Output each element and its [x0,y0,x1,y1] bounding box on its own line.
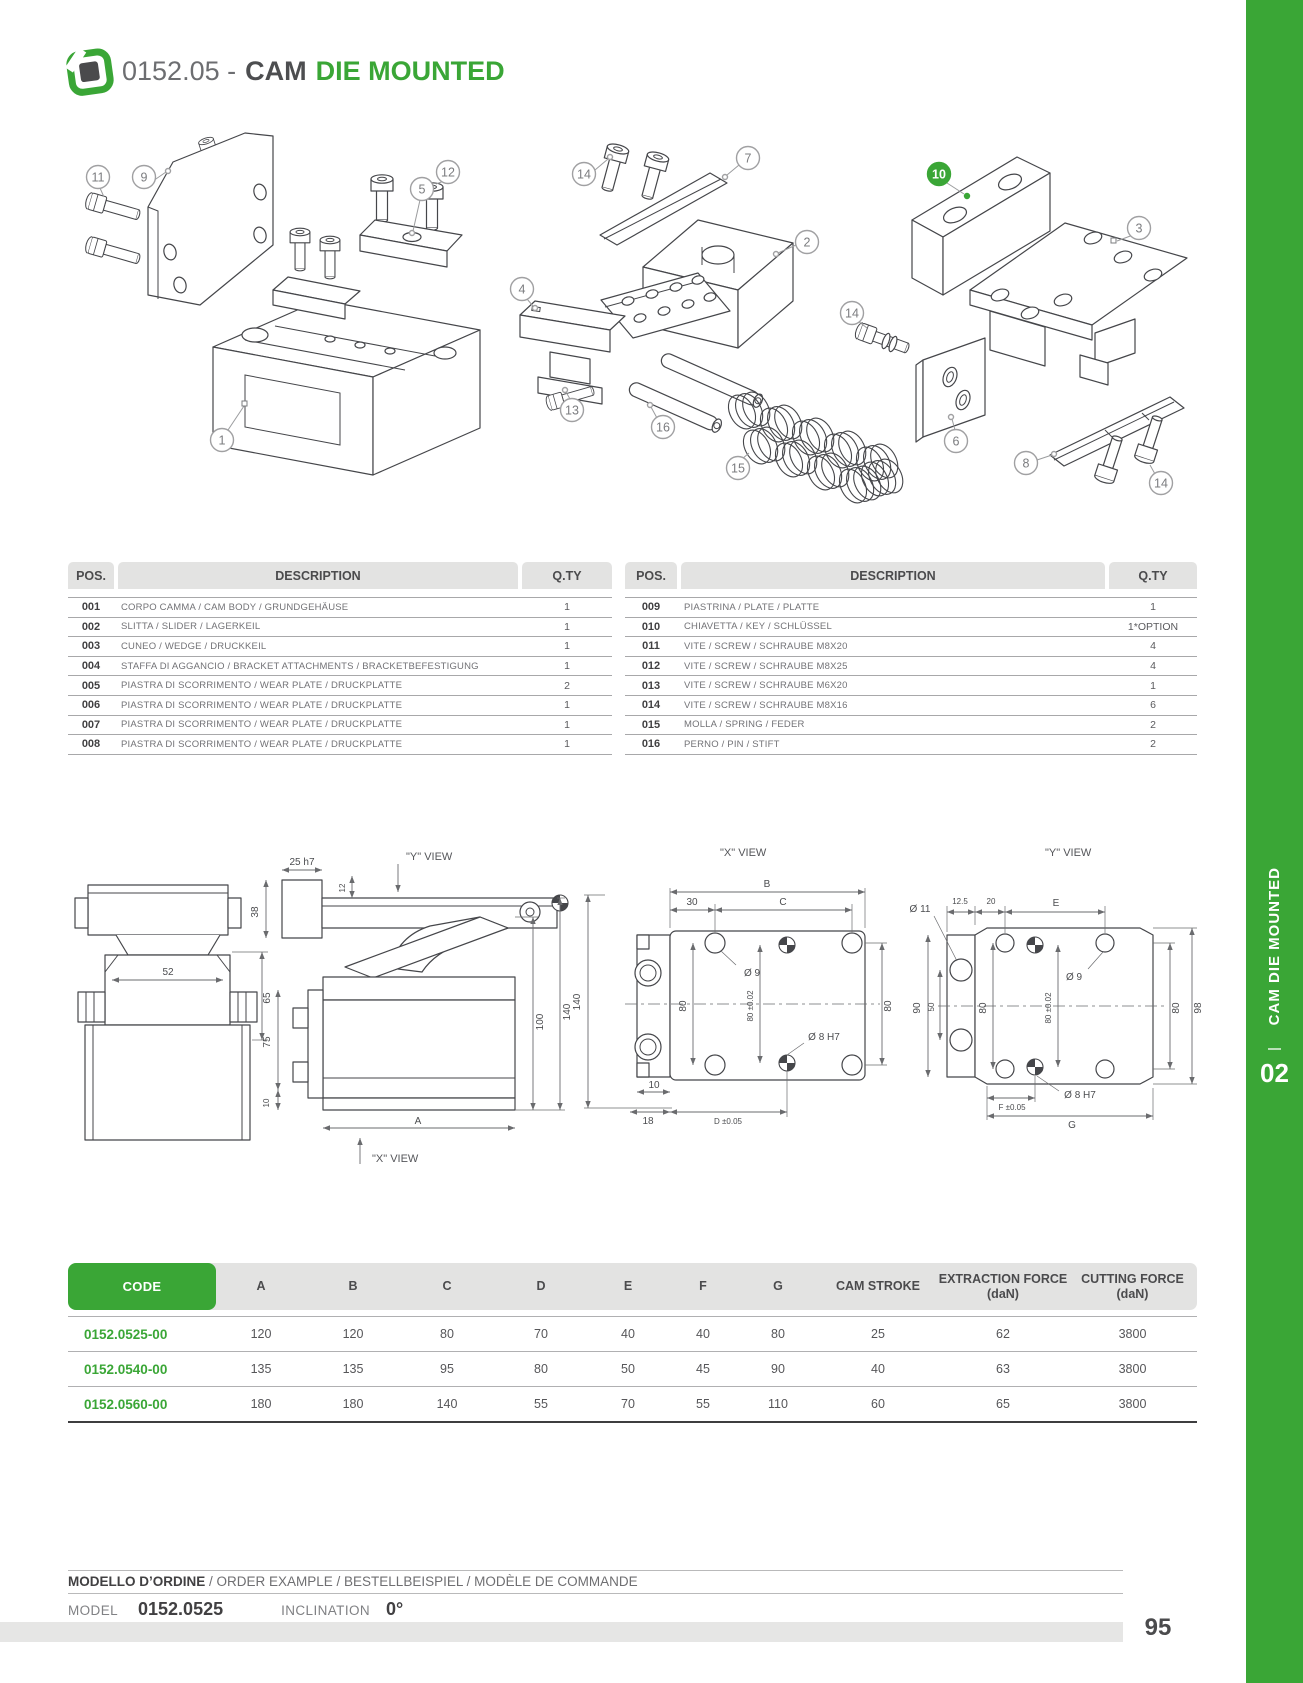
svg-text:98: 98 [1193,1002,1204,1014]
page-title: 0152.05 -CAMDIE MOUNTED [122,56,505,87]
part-desc: PIASTRINA / PLATE / PLATTE [677,602,1109,613]
col-header-extraction-force: EXTRACTION FORCE (daN) [938,1272,1068,1302]
part-pos: 011 [625,640,677,652]
table-row: 007PIASTRA DI SCORRIMENTO / WEAR PLATE /… [68,716,612,736]
spec-value: 135 [216,1362,306,1376]
spec-table: CODE A B C D E F G CAM STROKE EXTRACTION… [68,1263,1197,1423]
part-pos: 008 [68,738,114,750]
svg-text:30: 30 [686,897,698,908]
part-qty: 1 [1109,680,1197,692]
table-row: 010CHIAVETTA / KEY / SCHLÜSSEL1*OPTION [625,618,1197,638]
table-row: 015MOLLA / SPRING / FEDER2 [625,716,1197,736]
code-header: CODE [68,1263,216,1310]
spec-value: 120 [216,1327,306,1341]
table-row: 006PIASTRA DI SCORRIMENTO / WEAR PLATE /… [68,696,612,716]
catalog-page: 0152.05 -CAMDIE MOUNTED [0,0,1303,1683]
part-qty: 1 [522,719,612,731]
callout-10: 10 [928,163,970,199]
part-pos: 010 [625,621,677,633]
inclination-value: 0° [386,1599,403,1620]
col-header-g: G [738,1279,818,1294]
page-title-cam: CAM [245,56,307,86]
part-desc: VITE / SCREW / SCHRAUBE M8X16 [677,700,1109,711]
callout-12: 12 [436,161,460,185]
part-pos: 001 [68,601,114,613]
spec-value: 45 [668,1362,738,1376]
parts-table-left-header: POS. DESCRIPTION Q.TY [68,562,612,589]
part-desc: PIASTRA DI SCORRIMENTO / WEAR PLATE / DR… [114,680,522,691]
part-qty: 1 [522,660,612,672]
x-view-drawing: "X" VIEW B 30 C Ø 9 80 80 ±0. [572,847,894,1127]
spec-row: 0152.0540-00 135 135 95 80 50 45 90 40 6… [68,1352,1197,1387]
part-desc: VITE / SCREW / SCHRAUBE M8X20 [677,641,1109,652]
svg-text:10: 10 [262,1098,271,1107]
table-row: 014VITE / SCREW / SCHRAUBE M8X166 [625,696,1197,716]
sidebar-category-label: CAM DIE MOUNTED [1266,867,1283,1025]
header-line2: (daN) [1068,1287,1197,1302]
svg-text:9: 9 [141,171,148,185]
part-pos: 003 [68,640,114,652]
product-code: 0152.0525-00 [68,1327,216,1342]
part-qty: 1 [522,640,612,652]
svg-text:Ø 11: Ø 11 [910,904,931,915]
product-code: 0152.0540-00 [68,1362,216,1377]
svg-text:14: 14 [1154,477,1168,491]
spec-value: 40 [588,1327,668,1341]
svg-text:6: 6 [953,435,960,449]
col-header-f: F [668,1279,738,1294]
part-desc: MOLLA / SPRING / FEDER [677,719,1109,730]
part-pos: 014 [625,699,677,711]
part-qty: 4 [1109,660,1197,672]
svg-text:65: 65 [262,992,273,1004]
svg-text:80: 80 [883,1000,894,1012]
part-pos: 005 [68,680,114,692]
part-bracket-4 [520,301,625,404]
spec-value: 135 [306,1362,400,1376]
svg-text:"X" VIEW: "X" VIEW [720,847,767,859]
part-desc: SLITTA / SLIDER / LAGERKEIL [114,621,522,632]
order-heading-bold: MODELLO D’ORDINE [68,1574,205,1589]
pos-header: POS. [625,562,677,589]
svg-text:100: 100 [535,1013,546,1030]
part-desc: CHIAVETTA / KEY / SCHLÜSSEL [677,621,1109,632]
order-heading-rest: / ORDER EXAMPLE / BESTELLBEISPIEL / MODÈ… [205,1574,637,1589]
part-pos: 012 [625,660,677,672]
spec-value: 140 [400,1397,494,1411]
svg-text:"Y" VIEW: "Y" VIEW [1045,847,1092,859]
table-row: 013VITE / SCREW / SCHRAUBE M6X201 [625,676,1197,696]
part-qty: 2 [1109,719,1197,731]
svg-text:"X" VIEW: "X" VIEW [372,1153,419,1165]
col-header-a: A [216,1279,306,1294]
svg-text:50: 50 [927,1002,936,1011]
table-row: 003CUNEO / WEDGE / DRUCKKEIL1 [68,637,612,657]
svg-text:12: 12 [441,166,455,180]
page-title-code: 0152.05 - [122,56,236,86]
description-header: DESCRIPTION [681,562,1105,589]
part-qty: 6 [1109,699,1197,711]
svg-text:20: 20 [987,897,996,906]
header-line1: CUTTING FORCE [1081,1272,1184,1286]
col-header-cutting-force: CUTTING FORCE (daN) [1068,1272,1197,1302]
footer-bar [0,1622,1123,1642]
spec-value: 3800 [1068,1327,1197,1341]
callout-11: 11 [87,166,110,198]
svg-text:14: 14 [577,168,591,182]
table-row: 012VITE / SCREW / SCHRAUBE M8X254 [625,657,1197,677]
part-pos: 006 [68,699,114,711]
spec-value: 70 [588,1397,668,1411]
spec-row: 0152.0525-00 120 120 80 70 40 40 80 25 6… [68,1317,1197,1352]
svg-text:1: 1 [219,434,226,448]
part-qty: 1 [1109,601,1197,613]
part-qty: 2 [522,680,612,692]
spec-value: 95 [400,1362,494,1376]
part-pos: 009 [625,601,677,613]
y-view-drawing: "Y" VIEW Ø 11 12.5 20 E 90 50 8 [910,847,1204,1131]
part-qty: 1 [522,621,612,633]
spec-value: 120 [306,1327,400,1341]
front-view-drawing: 52 65 [75,885,273,1140]
part-desc: CUNEO / WEDGE / DRUCKKEIL [114,641,522,652]
svg-text:"Y" VIEW: "Y" VIEW [406,851,453,863]
sidebar-category: CAM DIE MOUNTED [1246,840,1303,1052]
parts-table-right: POS. DESCRIPTION Q.TY 009PIASTRINA / PLA… [625,562,1197,755]
svg-text:25 h7: 25 h7 [289,857,314,868]
svg-text:80: 80 [678,1000,689,1012]
qty-header: Q.TY [1109,562,1197,589]
svg-text:7: 7 [745,152,752,166]
sidebar-chapter-number: 02 [1246,1058,1303,1089]
part-pos: 007 [68,719,114,731]
divider [68,1570,1123,1571]
svg-text:B: B [764,879,771,890]
spec-value: 180 [216,1397,306,1411]
svg-text:52: 52 [162,967,174,978]
parts-table-left: POS. DESCRIPTION Q.TY 001CORPO CAMMA / C… [68,562,612,755]
part-plate-6 [916,338,985,442]
order-example-heading: MODELLO D’ORDINE / ORDER EXAMPLE / BESTE… [68,1574,638,1589]
svg-text:Ø 9: Ø 9 [744,968,761,979]
part-desc: VITE / SCREW / SCHRAUBE M6X20 [677,680,1109,691]
part-desc: PIASTRA DI SCORRIMENTO / WEAR PLATE / DR… [114,739,522,750]
part-wedge-2 [601,220,793,348]
part-qty: 1 [522,738,612,750]
spec-value: 80 [494,1362,588,1376]
part-springs-15 [723,384,908,511]
page-number: 95 [1128,1614,1188,1642]
spec-value: 62 [938,1327,1068,1341]
parts-table-right-header: POS. DESCRIPTION Q.TY [625,562,1197,589]
spec-value: 50 [588,1362,668,1376]
part-plate-9 [148,133,273,305]
svg-text:80 ±0.02: 80 ±0.02 [746,990,755,1022]
table-row: 004STAFFA DI AGGANCIO / BRACKET ATTACHME… [68,657,612,677]
pos-header: POS. [68,562,114,589]
part-pos: 002 [68,621,114,633]
svg-text:Ø 9: Ø 9 [1066,972,1083,983]
table-row: 008PIASTRA DI SCORRIMENTO / WEAR PLATE /… [68,735,612,755]
product-code: 0152.0560-00 [68,1397,216,1412]
part-qty: 1 [522,601,612,613]
svg-text:80: 80 [978,1002,989,1014]
svg-text:18: 18 [642,1116,654,1127]
spec-value: 40 [818,1362,938,1376]
svg-text:75: 75 [262,1036,273,1048]
col-header-c: C [400,1279,494,1294]
svg-text:F ±0.05: F ±0.05 [998,1103,1026,1112]
svg-text:3: 3 [1136,222,1143,236]
part-desc: PERNO / PIN / STIFT [677,739,1109,750]
table-row: 011VITE / SCREW / SCHRAUBE M8X204 [625,637,1197,657]
part-desc: PIASTRA DI SCORRIMENTO / WEAR PLATE / DR… [114,700,522,711]
part-qty: 2 [1109,738,1197,750]
spec-value: 60 [818,1397,938,1411]
svg-text:38: 38 [250,906,261,918]
svg-text:E: E [1053,898,1060,909]
spec-value: 90 [738,1362,818,1376]
spec-value: 55 [668,1397,738,1411]
spec-value: 80 [400,1327,494,1341]
qty-header: Q.TY [522,562,612,589]
col-header-e: E [588,1279,668,1294]
svg-text:D ±0.05: D ±0.05 [714,1117,743,1126]
header-line1: EXTRACTION FORCE [939,1272,1067,1286]
part-pos: 015 [625,719,677,731]
spec-table-header: CODE A B C D E F G CAM STROKE EXTRACTION… [68,1263,1197,1310]
spec-value: 110 [738,1397,818,1411]
dimension-drawings: 52 65 "Y" VIEW 25 h7 38 12 [60,840,1210,1180]
model-value: 0152.0525 [138,1599,223,1620]
table-row: 005PIASTRA DI SCORRIMENTO / WEAR PLATE /… [68,676,612,696]
brand-logo-icon [64,44,118,100]
side-view-drawing: "Y" VIEW 25 h7 38 12 75 10 [250,851,573,1165]
svg-text:4: 4 [519,283,526,297]
svg-text:C: C [779,897,786,908]
description-header: DESCRIPTION [118,562,518,589]
part-desc: CORPO CAMMA / CAM BODY / GRUNDGEHÄUSE [114,602,522,613]
svg-text:8: 8 [1023,457,1030,471]
svg-text:Ø 8 H7: Ø 8 H7 [808,1032,840,1043]
part-desc: PIASTRA DI SCORRIMENTO / WEAR PLATE / DR… [114,719,522,730]
divider [68,1593,1123,1594]
col-header-cam-stroke: CAM STROKE [818,1279,938,1294]
sidebar-separator [1268,1048,1281,1050]
svg-text:15: 15 [731,462,745,476]
spec-value: 65 [938,1397,1068,1411]
part-screw-14-right [853,322,911,357]
callout-7: 7 [723,147,760,180]
svg-text:140: 140 [572,993,583,1010]
spec-value: 63 [938,1362,1068,1376]
page-title-diemounted: DIE MOUNTED [316,56,505,86]
spec-value: 3800 [1068,1397,1197,1411]
svg-text:12.5: 12.5 [952,897,968,906]
spec-value: 80 [738,1327,818,1341]
table-row: 009PIASTRINA / PLATE / PLATTE1 [625,598,1197,618]
part-pos: 013 [625,680,677,692]
part-screws-11 [84,192,142,268]
table-row: 001CORPO CAMMA / CAM BODY / GRUNDGEHÄUSE… [68,598,612,618]
spec-value: 3800 [1068,1362,1197,1376]
part-pos: 004 [68,660,114,672]
order-model-row: MODEL 0152.0525 INCLINATION 0° [68,1599,403,1620]
part-pos: 016 [625,738,677,750]
svg-text:80 ±0.02: 80 ±0.02 [1044,992,1053,1024]
col-header-d: D [494,1279,588,1294]
svg-text:2: 2 [804,236,811,250]
callout-4: 4 [511,278,538,311]
part-qty: 1 [522,699,612,711]
inclination-label: INCLINATION [281,1603,370,1618]
spec-value: 25 [818,1327,938,1341]
part-pins-16 [627,352,764,434]
spec-value: 55 [494,1397,588,1411]
svg-text:5: 5 [419,183,426,197]
model-label: MODEL [68,1603,118,1618]
part-qty: 1*OPTION [1109,621,1197,633]
part-cam-body-1 [213,300,480,475]
callout-15: 15 [727,453,750,480]
svg-text:A: A [415,1116,422,1127]
callout-14-bottom: 14 [1150,465,1173,495]
spec-value: 180 [306,1397,400,1411]
svg-text:14: 14 [845,307,859,321]
spec-value: 40 [668,1327,738,1341]
svg-text:13: 13 [565,404,579,418]
svg-text:12: 12 [338,883,347,892]
part-desc: VITE / SCREW / SCHRAUBE M8X25 [677,661,1109,672]
col-header-b: B [306,1279,400,1294]
svg-text:16: 16 [656,421,670,435]
header-line2: (daN) [938,1287,1068,1302]
svg-text:10: 10 [648,1080,660,1091]
spec-row: 0152.0560-00 180 180 140 55 70 55 110 60… [68,1387,1197,1423]
svg-text:Ø 8 H7: Ø 8 H7 [1064,1090,1096,1101]
svg-text:10: 10 [932,168,946,182]
table-row: 002SLITTA / SLIDER / LAGERKEIL1 [68,618,612,638]
exploded-assembly-diagram: 11 9 12 5 14 7 2 10 3 14 [30,115,1230,515]
part-screws-14-mid [596,142,670,201]
part-qty: 4 [1109,640,1197,652]
svg-text:G: G [1068,1120,1076,1131]
svg-text:80: 80 [1171,1002,1182,1014]
svg-text:90: 90 [912,1002,923,1014]
table-row: 016PERNO / PIN / STIFT2 [625,735,1197,755]
part-desc: STAFFA DI AGGANCIO / BRACKET ATTACHMENTS… [114,661,522,672]
svg-text:11: 11 [92,171,105,185]
spec-value: 70 [494,1327,588,1341]
